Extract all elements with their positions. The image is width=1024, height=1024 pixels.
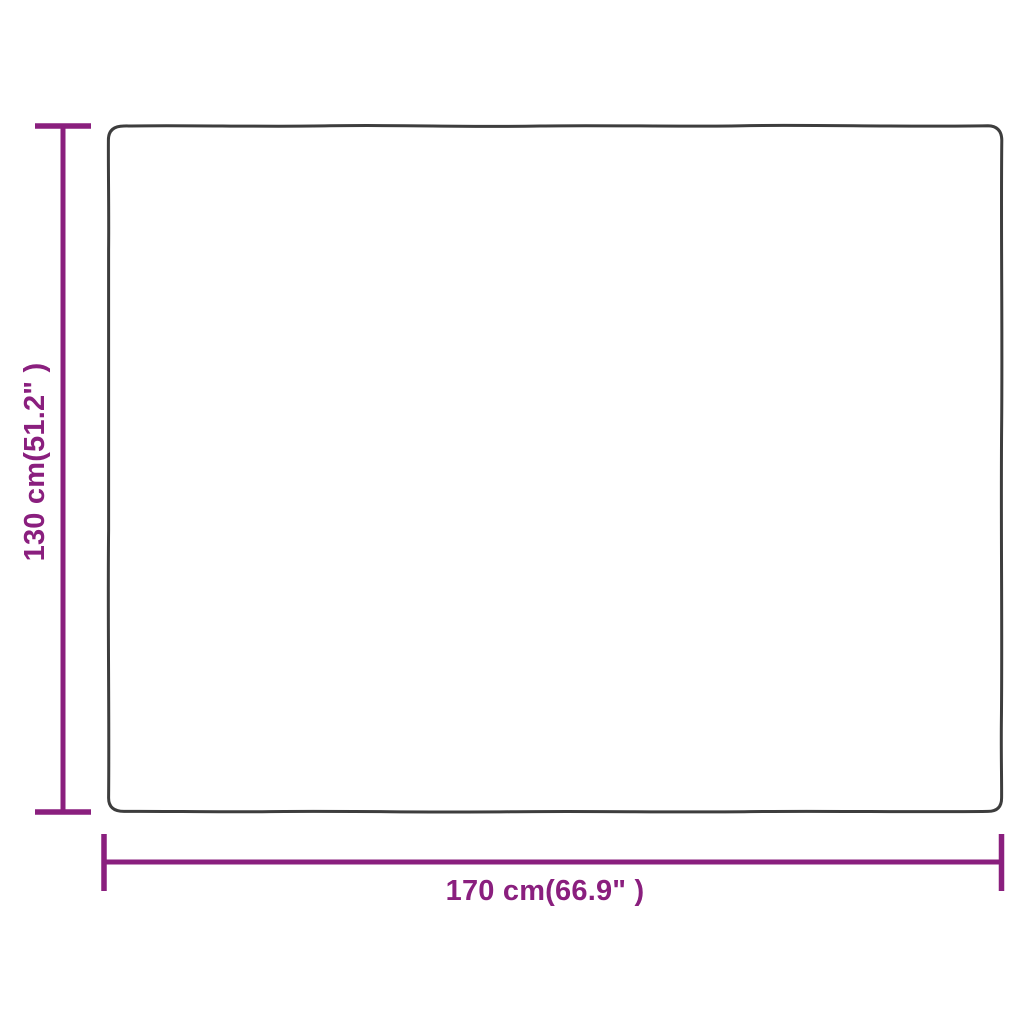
product-dimension-diagram: 130 cm(51.2" ) 170 cm(66.9" ) bbox=[0, 0, 1024, 1024]
product-outline bbox=[108, 125, 1002, 812]
width-dimension-label: 170 cm(66.9" ) bbox=[446, 875, 645, 907]
height-dimension-label: 130 cm(51.2" ) bbox=[19, 363, 51, 562]
dimension-diagram-svg: 130 cm(51.2" ) 170 cm(66.9" ) bbox=[0, 0, 1024, 1024]
